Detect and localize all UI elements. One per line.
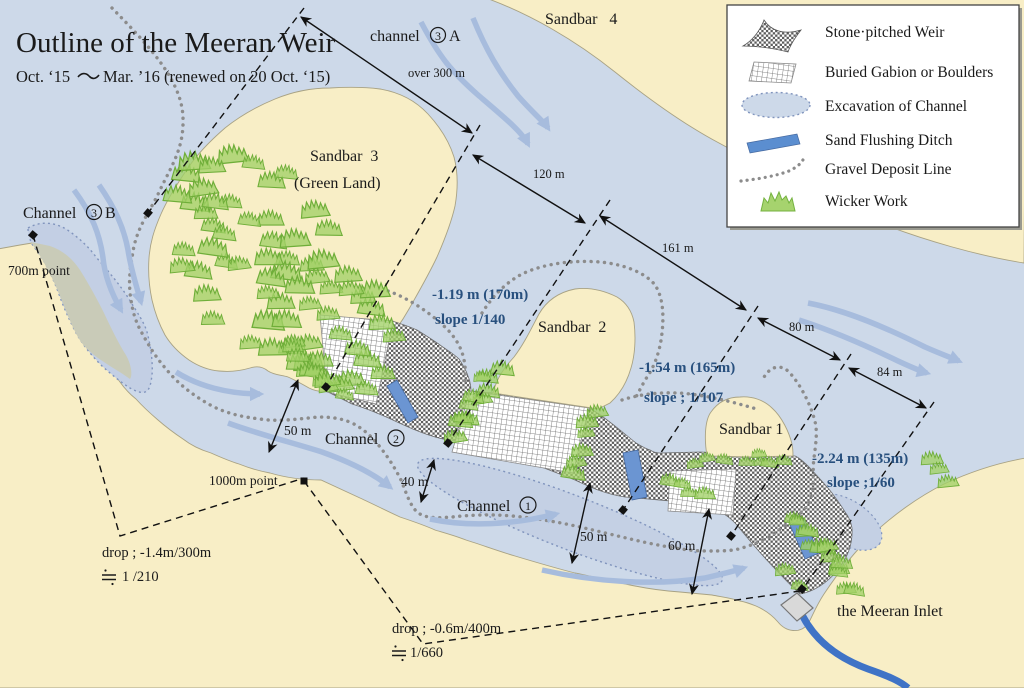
svg-text:-1.54 m (165m): -1.54 m (165m) [639, 360, 735, 376]
svg-text:slope ; 1/107: slope ; 1/107 [644, 390, 724, 406]
svg-text:Sand Flushing Ditch: Sand Flushing Ditch [825, 132, 953, 149]
svg-text:50 m: 50 m [580, 529, 608, 544]
svg-text:84 m: 84 m [877, 365, 903, 379]
svg-text:-1.19 m (170m): -1.19 m (170m) [432, 287, 528, 303]
svg-text:1000m point: 1000m point [209, 473, 278, 488]
svg-text:Channel: Channel [457, 498, 511, 515]
svg-text:the Meeran Inlet: the Meeran Inlet [837, 603, 943, 620]
svg-text:60 m: 60 m [668, 538, 696, 553]
svg-text:slope ;1/60: slope ;1/60 [827, 475, 895, 491]
svg-text:Buried Gabion or Boulders: Buried Gabion or Boulders [825, 64, 993, 81]
svg-text:40 m: 40 m [401, 474, 429, 489]
svg-text:Mar. ’16 (renewed on 20 Oct. ‘: Mar. ’16 (renewed on 20 Oct. ‘15) [103, 67, 330, 86]
svg-text:161 m: 161 m [662, 241, 694, 255]
svg-text:2: 2 [393, 432, 399, 446]
svg-text:3: 3 [435, 29, 441, 43]
svg-text:Wicker Work: Wicker Work [825, 193, 908, 210]
svg-text:1 /210: 1 /210 [122, 569, 159, 585]
svg-text:Excavation of Channel: Excavation of Channel [825, 98, 967, 115]
svg-text:120 m: 120 m [533, 167, 565, 181]
svg-text:Oct. ‘15: Oct. ‘15 [16, 67, 70, 86]
svg-text:Outline of the Meeran Weir: Outline of the Meeran Weir [16, 27, 336, 59]
svg-text:-2.24 m (135m): -2.24 m (135m) [812, 451, 908, 467]
svg-text:drop ; -1.4m/300m: drop ; -1.4m/300m [102, 545, 212, 561]
svg-text:50 m: 50 m [284, 423, 312, 438]
svg-text:slope 1/140: slope 1/140 [435, 312, 505, 328]
svg-text:Sandbar 2: Sandbar 2 [538, 319, 606, 336]
svg-text:Sandbar 4: Sandbar 4 [545, 11, 617, 28]
svg-text:Stone·pitched Weir: Stone·pitched Weir [825, 24, 945, 41]
svg-text:Channel: Channel [325, 431, 379, 448]
svg-text:Sandbar 1: Sandbar 1 [719, 421, 783, 438]
svg-text:80 m: 80 m [789, 320, 815, 334]
svg-text:drop ; -0.6m/400m: drop ; -0.6m/400m [392, 621, 502, 637]
svg-text:1: 1 [525, 499, 531, 513]
svg-text:700m point: 700m point [8, 263, 70, 278]
svg-text:Sandbar 3: Sandbar 3 [310, 148, 378, 165]
svg-text:A: A [449, 28, 461, 45]
svg-text:(Green Land): (Green Land) [294, 175, 381, 192]
svg-text:channel: channel [370, 28, 420, 45]
svg-text:1/660: 1/660 [410, 645, 443, 661]
svg-text:over 300 m: over 300 m [408, 66, 465, 80]
svg-text:Gravel Deposit Line: Gravel Deposit Line [825, 161, 952, 178]
svg-text:Channel: Channel [23, 205, 77, 222]
svg-text:3: 3 [91, 206, 97, 220]
svg-text:B: B [105, 205, 116, 222]
